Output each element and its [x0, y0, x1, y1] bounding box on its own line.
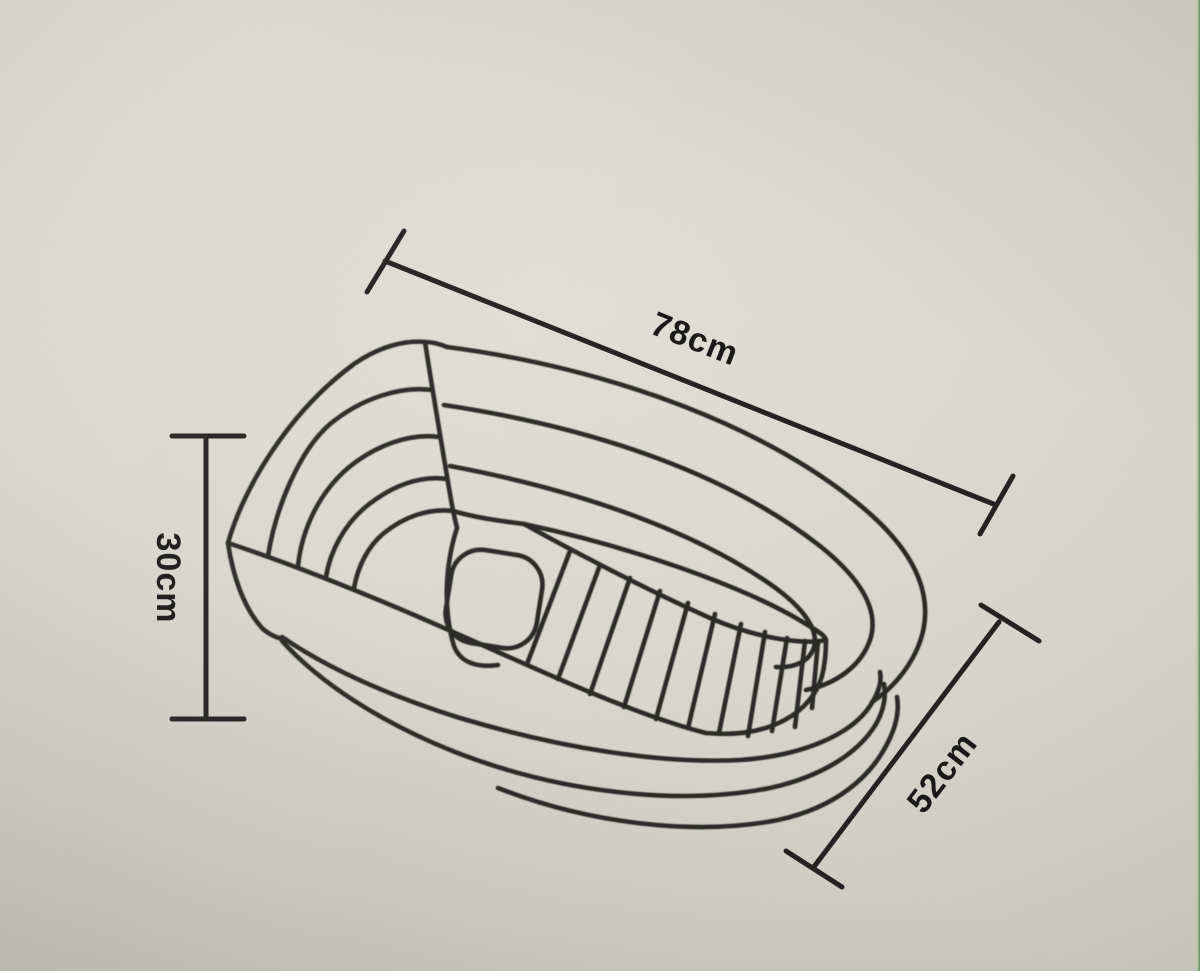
photographed-diagram-page: 78cm 30cm 52cm — [0, 0, 1200, 971]
photo-edge-green-strip — [1195, 0, 1200, 971]
height-dimension-label: 30cm — [149, 533, 187, 624]
bathtub-dimension-diagram: 78cm 30cm 52cm — [0, 0, 1200, 971]
paper-grain-texture — [0, 0, 1200, 971]
